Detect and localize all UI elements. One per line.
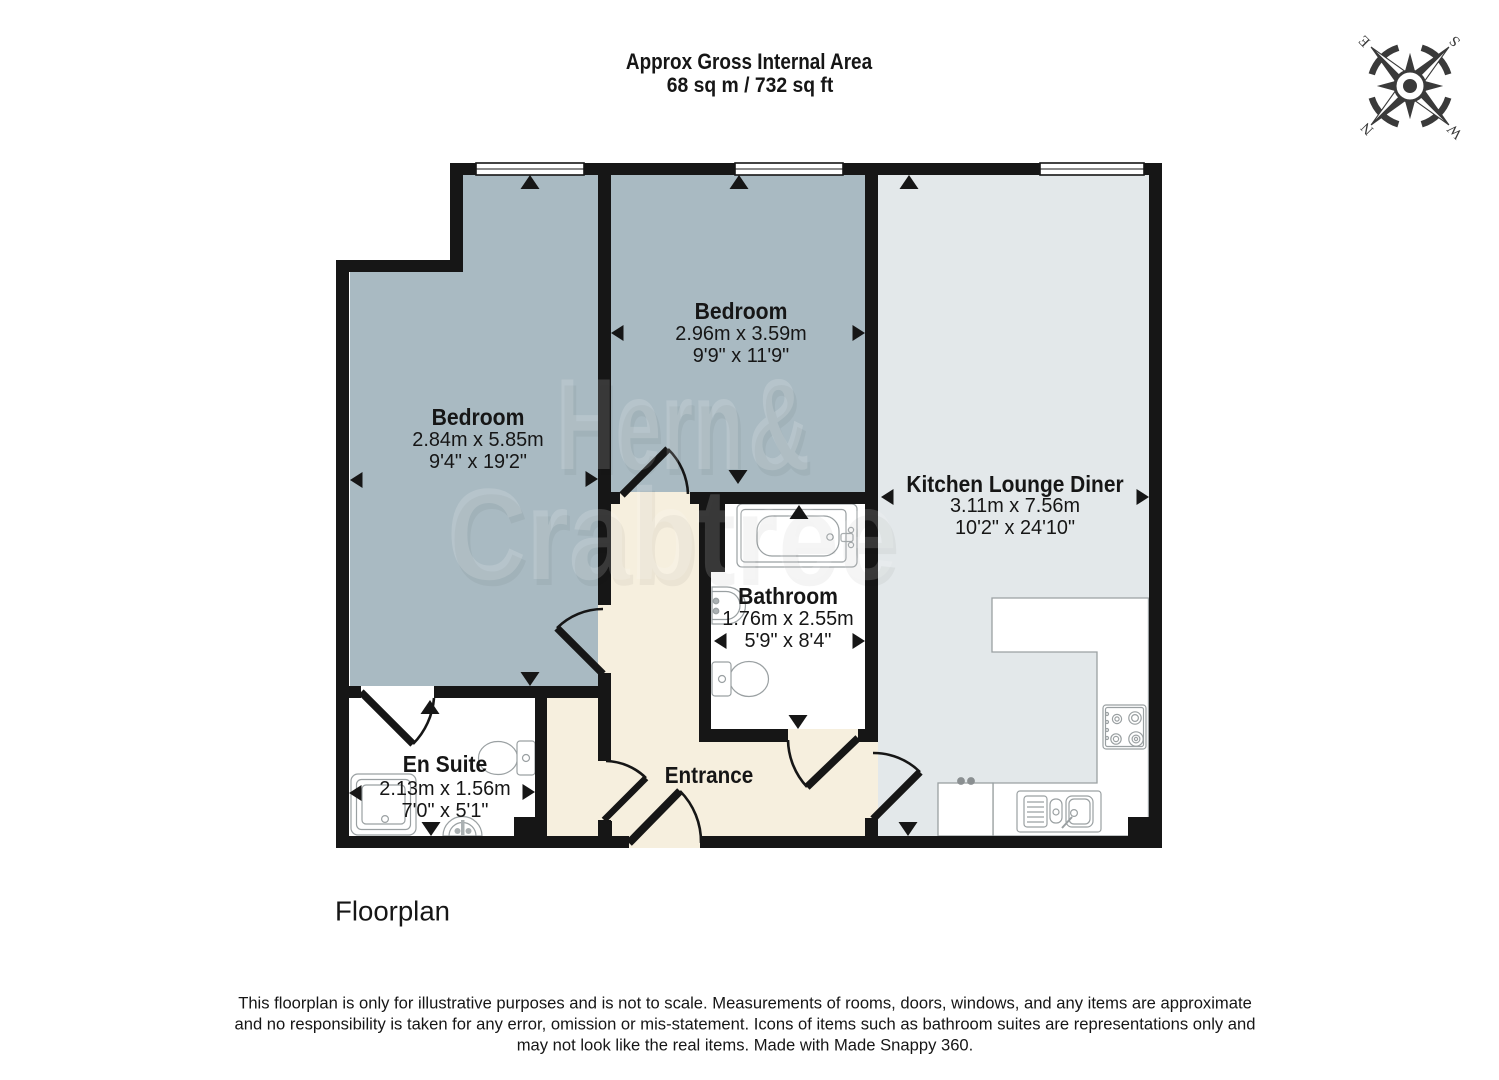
svg-text:S: S	[1447, 32, 1464, 49]
svg-text:7'0" x 5'1": 7'0" x 5'1"	[402, 800, 489, 822]
svg-text:9'4" x 19'2": 9'4" x 19'2"	[429, 451, 527, 473]
svg-text:68 sq m / 732 sq ft: 68 sq m / 732 sq ft	[667, 73, 834, 97]
svg-text:5'9" x 8'4": 5'9" x 8'4"	[745, 630, 832, 652]
svg-text:Approx Gross Internal Area: Approx Gross Internal Area	[626, 50, 873, 75]
svg-text:Bedroom: Bedroom	[432, 404, 525, 430]
svg-text:may not look like the real ite: may not look like the real items. Made w…	[517, 1036, 974, 1055]
svg-text:Kitchen Lounge Diner: Kitchen Lounge Diner	[906, 471, 1124, 497]
svg-text:2.84m x 5.85m: 2.84m x 5.85m	[412, 429, 543, 451]
svg-text:Entrance: Entrance	[665, 762, 753, 789]
svg-text:Bedroom: Bedroom	[695, 298, 788, 324]
svg-text:9'9" x 11'9": 9'9" x 11'9"	[693, 345, 789, 367]
svg-text:En Suite: En Suite	[403, 751, 488, 777]
svg-text:1.76m x 2.55m: 1.76m x 2.55m	[722, 608, 853, 630]
svg-text:2.96m x 3.59m: 2.96m x 3.59m	[675, 323, 806, 345]
svg-text:2.13m x 1.56m: 2.13m x 1.56m	[379, 778, 510, 800]
svg-text:This floorplan is only for ill: This floorplan is only for illustrative …	[238, 994, 1252, 1013]
svg-text:E: E	[1356, 32, 1374, 50]
svg-text:Bathroom: Bathroom	[738, 583, 838, 609]
svg-text:Floorplan: Floorplan	[335, 896, 450, 927]
svg-text:and no responsibility is taken: and no responsibility is taken for any e…	[234, 1015, 1255, 1034]
svg-text:10'2" x 24'10": 10'2" x 24'10"	[955, 517, 1075, 539]
svg-text:3.11m x 7.56m: 3.11m x 7.56m	[950, 495, 1080, 517]
